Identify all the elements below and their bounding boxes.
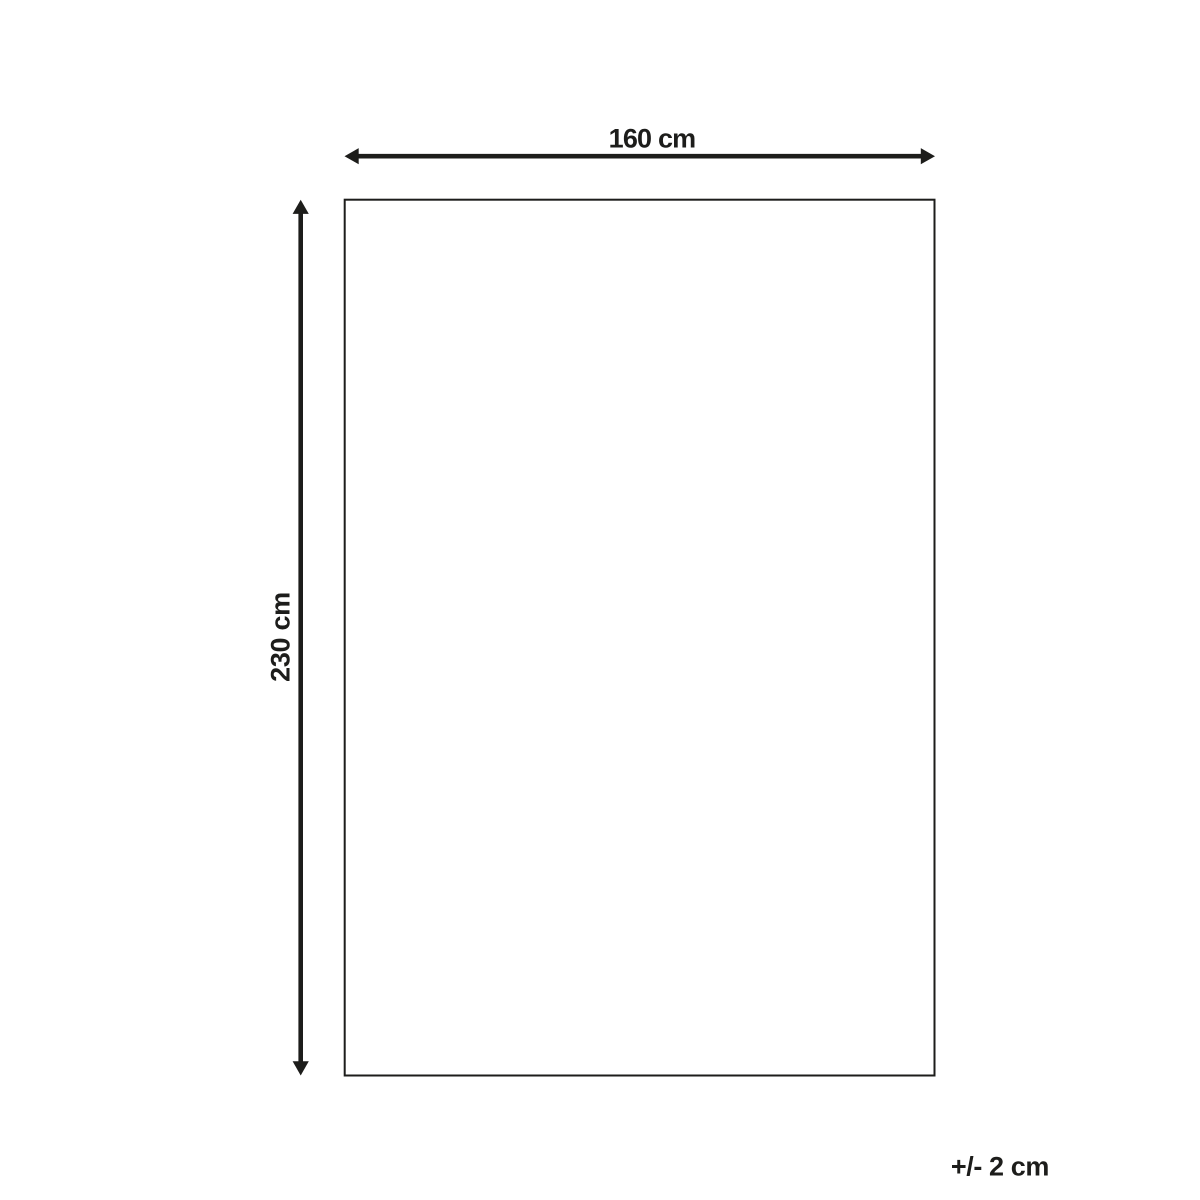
svg-text:230 cm: 230 cm [266, 592, 296, 682]
svg-text:160 cm: 160 cm [609, 124, 696, 154]
svg-text:+/- 2 cm: +/- 2 cm [951, 1152, 1049, 1182]
